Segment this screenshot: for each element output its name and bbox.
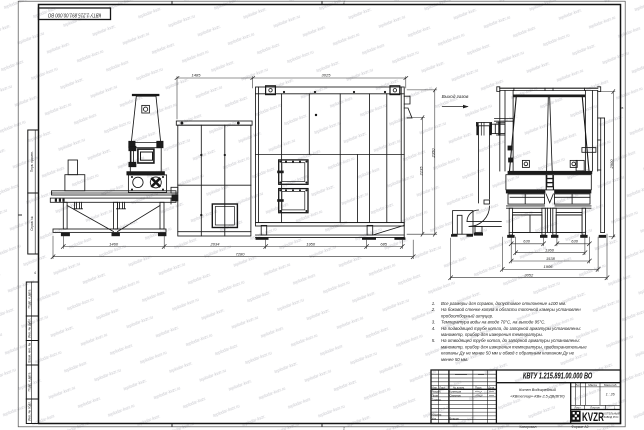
svg-text:Пров.: Пров. [432,394,439,398]
svg-text:КВТУ 1.215.891.00.000 ВО: КВТУ 1.215.891.00.000 ВО [523,373,593,381]
svg-text:Изм.: Изм. [432,386,438,390]
svg-text:ЗАВОД РОС: ЗАВОД РОС [604,415,619,419]
svg-text:манометр, прибор для измерения: манометр, прибор для измерения температу… [441,344,587,349]
svg-text:2135: 2135 [418,166,423,177]
svg-text:2900: 2900 [609,159,614,170]
svg-text:№ докум.: № докум. [453,387,465,390]
svg-text:Инв. № дубл.: Инв. № дубл. [28,318,32,338]
svg-text:2: 2 [343,1,345,5]
svg-text:Н.контр.: Н.контр. [432,413,443,417]
svg-text:685: 685 [380,241,387,246]
svg-text:манометр, прибор для измерения: манометр, прибор для измерения температу… [441,332,543,337]
svg-text:1.: 1. [432,301,436,306]
svg-text:Справ. №: Справ. № [30,216,34,231]
svg-text:Все размеры для справок, допус: Все размеры для справок, допустимое откл… [441,301,566,306]
svg-text:4: 4 [34,271,36,275]
svg-text:На подводящей трубе котла, до: На подводящей трубе котла, до запорной а… [441,326,582,331]
svg-text:клапаны Ду не менее 50 мм и об: клапаны Ду не менее 50 мм и обвод с обра… [441,351,575,356]
svg-text:3025: 3025 [322,73,332,78]
svg-text:1906: 1906 [544,264,554,269]
svg-text:Взам. инв. №: Взам. инв. № [27,342,31,362]
svg-text:1360: 1360 [545,248,555,253]
svg-text:Лист: Лист [439,386,446,390]
svg-text:Дата: Дата [488,386,494,390]
svg-text:Утв.: Утв. [432,416,437,420]
svg-text:Смирнов: Смирнов [450,394,462,398]
svg-text:пробоотборный штуцер.: пробоотборный штуцер. [441,313,493,318]
svg-text:2.: 2. [431,307,436,312]
svg-text:1950: 1950 [306,241,316,246]
svg-text:7280: 7280 [236,252,246,257]
svg-text:KVZR: KVZR [582,412,604,425]
svg-text:менее 50 мм.: менее 50 мм. [441,357,468,362]
svg-text:630: 630 [571,239,578,244]
svg-text:1460: 1460 [109,241,119,246]
svg-text:2: 2 [343,426,345,430]
svg-text:1 : 26: 1 : 26 [606,393,615,397]
svg-text:Подп. и дата: Подп. и дата [28,372,32,391]
svg-text:Кузнецов: Кузнецов [450,390,462,394]
svg-text:На боковой стенке котла в обла: На боковой стенке котла в области топочн… [441,307,581,312]
svg-text:КВТУ 1.215.891.00.000 ВО: КВТУ 1.215.891.00.000 ВО [48,11,101,18]
svg-text:Подп. и дата: Подп. и дата [28,289,32,308]
svg-text:в: в [622,106,624,110]
svg-text:Копировал: Копировал [520,425,537,429]
svg-text:КОТЕЛЬНЫЙ: КОТЕЛЬНЫЙ [604,412,620,416]
svg-text:4.: 4. [432,326,436,331]
svg-text:1538: 1538 [546,256,556,261]
svg-text:Перв. примен.: Перв. примен. [30,151,34,172]
svg-text:Лит.: Лит. [575,383,581,387]
svg-text:2034: 2034 [210,241,221,246]
svg-text:Власов: Власов [450,416,460,420]
svg-text:Т.контр.: Т.контр. [432,397,442,401]
svg-text:Выход газов: Выход газов [442,94,469,99]
svg-text:Температура воды на входе 70°С: Температура воды на входе 70°С, на выход… [441,320,546,325]
svg-text:Формат А2: Формат А2 [571,425,588,429]
svg-text:Инв. № подл.: Инв. № подл. [28,401,32,421]
svg-text:Подп.: Подп. [475,386,482,390]
svg-text:3.: 3. [432,320,436,325]
svg-text:«КВтеплар»-КВн-2,5-ДВ(ВПЛ): «КВтеплар»-КВн-2,5-ДВ(ВПЛ) [510,395,565,399]
svg-text:2350: 2350 [431,148,436,159]
svg-text:3052: 3052 [524,273,534,278]
svg-text:630: 630 [523,239,530,244]
svg-text:5.: 5. [432,338,436,343]
svg-text:Масса: Масса [588,383,597,387]
svg-text:На отводящей трубе котла, до з: На отводящей трубе котла, до запорной ар… [441,338,581,343]
svg-text:Разраб.: Разраб. [432,390,442,394]
svg-text:Лист: Лист [574,406,581,410]
svg-text:1485: 1485 [192,73,202,78]
svg-text:Котел Водогрейный: Котел Водогрейный [519,388,557,392]
svg-text:Листов: Листов [590,406,600,410]
svg-text:Масштаб: Масштаб [604,383,617,387]
